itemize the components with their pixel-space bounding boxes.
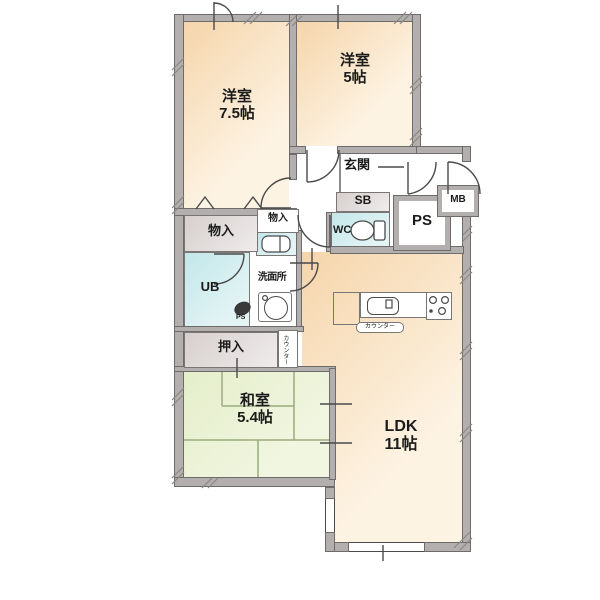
washbasin-unit [256, 232, 298, 256]
label-ldk: LDK 11帖 [365, 418, 437, 455]
wall-segment [325, 487, 335, 499]
window-south [349, 542, 424, 552]
room-size: 11帖 [365, 436, 437, 454]
room-size: 7.5帖 [184, 105, 290, 122]
label-pipe-space: PS [394, 212, 450, 229]
wall-segment [424, 542, 471, 552]
wall-segment [289, 146, 306, 154]
kitchen-sink [367, 297, 399, 315]
label-western-7-5: 洋室 7.5帖 [184, 88, 290, 123]
room-size: 5帖 [297, 69, 413, 86]
room-name: LDK [385, 418, 418, 435]
wall-segment [174, 14, 184, 487]
room-name: 洋室 [340, 52, 370, 69]
kitchen-hatch-unit [333, 292, 360, 325]
label-wc: WC [333, 224, 351, 237]
label-meter-box: MB [438, 194, 478, 206]
wall-segment [462, 146, 471, 162]
label-entrance: 玄関 [344, 158, 370, 173]
label-western-5: 洋室 5帖 [297, 52, 413, 87]
wall-segment [174, 14, 421, 22]
wall-segment [412, 14, 421, 154]
label-storage-1: 物入 [184, 224, 258, 239]
label-japanese-room: 和室 5.4帖 [200, 392, 310, 427]
room-size: 5.4帖 [200, 409, 310, 426]
window-west-lower [325, 499, 335, 532]
washing-machine [258, 292, 292, 322]
wall-segment [329, 368, 336, 480]
entrance-step-line [339, 154, 341, 196]
wall-segment [289, 154, 297, 180]
room-name: 和室 [240, 392, 270, 409]
label-storage-2: 物入 [257, 213, 299, 225]
label-pipe-space-2: PS [236, 314, 245, 322]
floorplan-canvas: 洋室 7.5帖 洋室 5帖 玄関 SB PS MB WC 物入 物入 UB 洗面… [0, 0, 600, 600]
room-name: 洋室 [222, 88, 252, 105]
label-closet: 押入 [184, 340, 278, 355]
label-counter-kitchen: カウンター [356, 324, 404, 331]
label-shoe-box: SB [336, 194, 390, 208]
washing-machine-drum [264, 296, 288, 320]
kitchen-stove [426, 292, 452, 320]
label-unit-bath: UB [184, 280, 236, 295]
wall-segment [325, 532, 335, 552]
wall-segment [337, 146, 417, 154]
label-washroom: 洗面所 [244, 272, 300, 284]
wall-segment [174, 477, 335, 487]
wall-segment [289, 14, 297, 154]
label-counter-side: カウンター [281, 332, 288, 368]
